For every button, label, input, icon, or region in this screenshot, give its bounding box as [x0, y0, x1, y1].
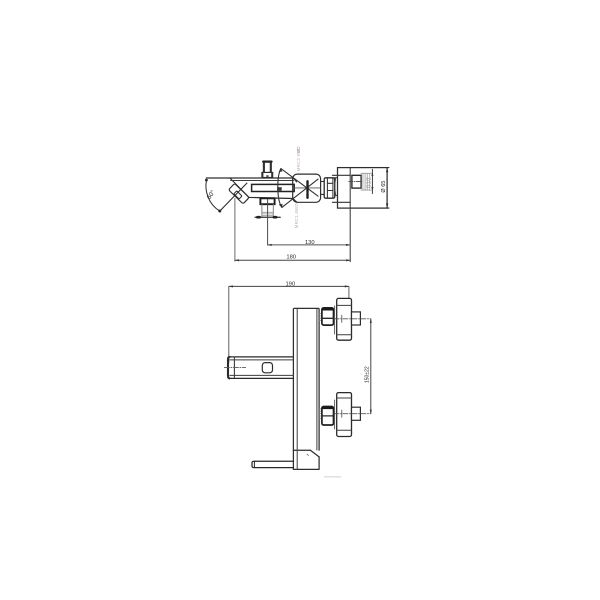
svg-text:130: 130 — [305, 240, 315, 246]
svg-text:150±22: 150±22 — [364, 366, 370, 383]
svg-text:Ø 65: Ø 65 — [381, 181, 387, 193]
svg-text:G1/2: G1/2 — [366, 177, 372, 188]
svg-text:MRC1.6WD: MRC1.6WD — [294, 203, 299, 228]
svg-text:180: 180 — [286, 255, 296, 261]
svg-text:VD: VD — [296, 146, 301, 153]
svg-text:60°: 60° — [206, 189, 217, 201]
svg-text:190: 190 — [285, 281, 295, 287]
